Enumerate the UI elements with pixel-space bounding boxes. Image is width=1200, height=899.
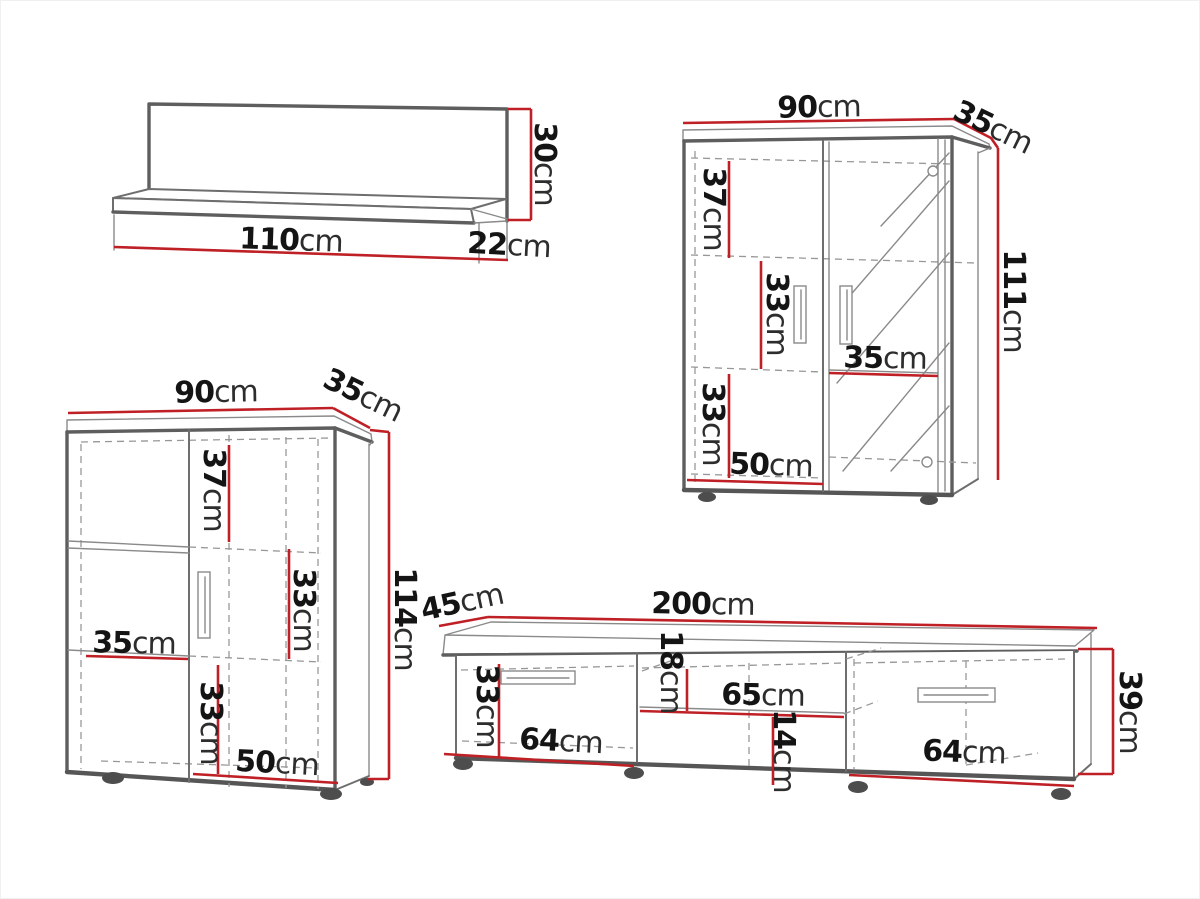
dim-display-cabinet-width: 90cm (777, 89, 861, 125)
dim-value: 50 (234, 743, 276, 780)
dim-unit: cm (470, 704, 505, 748)
dim-tvstand-left-drawer-width: 64cm (518, 721, 603, 760)
dim-unit: cm (274, 745, 319, 782)
dim-display-cabinet-shelf-width: 35cm (843, 340, 927, 376)
dim-tvstand-lower-niche-height: 14cm (767, 709, 802, 792)
dim-unit: cm (817, 89, 861, 125)
dim-tvstand-niche-width: 65cm (721, 677, 805, 713)
dim-unit: cm (456, 576, 506, 619)
dim-value: 33 (287, 568, 322, 608)
handle-outline (198, 572, 210, 638)
dim-highboard-middle-section: 33cm (287, 568, 322, 651)
dim-value: 14 (767, 709, 802, 749)
left-drawer-handle (501, 671, 575, 684)
dim-value: 33 (760, 272, 795, 312)
dim-unit: cm (768, 447, 813, 484)
height-dimension-line (1078, 649, 1113, 774)
dim-value: 64 (518, 721, 560, 758)
dim-tvstand-width: 200cm (651, 586, 755, 623)
diagram-canvas: 110cm 22cm 30cm (1, 1, 1199, 898)
cabinet-back-right-edge (978, 148, 990, 479)
dim-display-cabinet-bottom-section: 33cm (696, 382, 731, 465)
dim-value: 37 (197, 448, 232, 488)
glass-door-pin-top (928, 166, 938, 176)
dim-highboard-width: 90cm (174, 374, 258, 410)
dim-display-cabinet-top-section: 37cm (697, 167, 732, 250)
dim-highboard-bottom-section: 33cm (194, 681, 229, 764)
dim-value: 39 (1113, 670, 1148, 710)
dim-display-cabinet-door-width: 50cm (729, 446, 814, 484)
cabinet-bottom-right-slant (952, 479, 978, 495)
dim-value: 114 (388, 567, 423, 627)
dim-unit: cm (696, 422, 731, 466)
dim-display-cabinet-height: 111cm (997, 249, 1032, 352)
dim-unit: cm (654, 670, 689, 714)
dim-display-cabinet-middle-section: 33cm (760, 272, 795, 355)
dim-value: 65 (721, 677, 761, 713)
tvstand-foot (453, 758, 473, 770)
dim-unit: cm (711, 587, 755, 623)
handle-outline (840, 286, 852, 344)
tvstand-foot (1051, 788, 1071, 800)
dim-value: 33 (194, 681, 229, 721)
dim-wall-shelf-depth: 22cm (466, 225, 551, 264)
dim-unit: cm (506, 227, 551, 264)
tvstand-foot (848, 781, 868, 793)
dim-unit: cm (287, 608, 322, 652)
dim-unit: cm (883, 340, 927, 376)
door-handle (198, 572, 210, 638)
height-dimension-line (367, 432, 389, 779)
dim-value: 18 (654, 630, 689, 670)
dim-highboard-shelf-width: 35cm (92, 625, 176, 661)
highboard-foot (102, 772, 124, 784)
dim-highboard-door-width: 50cm (234, 743, 319, 782)
dim-value: 90 (174, 375, 214, 411)
dim-unit: cm (961, 734, 1006, 771)
dim-unit: cm (697, 207, 732, 251)
dim-highboard-height: 114cm (388, 567, 423, 670)
left-door-handle (794, 286, 806, 343)
highboard-foot (320, 788, 342, 800)
highboard-drawing: 90cm 35cm 114cm 37cm 33cm 35cm 33cm 50cm (67, 361, 423, 800)
dim-tvstand-niche-height: 18cm (654, 630, 689, 713)
dim-value: 110 (239, 221, 300, 258)
furniture-dimensions-diagram: 110cm 22cm 30cm (0, 0, 1200, 899)
dim-unit: cm (761, 677, 805, 713)
dim-tvstand-right-drawer-width: 64cm (922, 733, 1007, 771)
tvstand-foot (624, 767, 644, 779)
dim-display-cabinet-depth: 35cm (948, 93, 1038, 161)
dim-value: 33 (696, 382, 731, 422)
dim-value: 64 (922, 733, 963, 769)
dim-wall-shelf-width: 110cm (239, 221, 344, 260)
dim-unit: cm (132, 625, 176, 661)
dim-tvstand-depth: 45cm (418, 576, 507, 628)
dim-unit: cm (214, 374, 258, 410)
glass-door-pin-bottom (922, 457, 932, 467)
display-cabinet-drawing: 90cm 35cm 111cm 37cm 33cm 35cm 33cm 50cm (683, 89, 1038, 505)
dim-unit: cm (760, 312, 795, 356)
cabinet-foot (920, 495, 938, 505)
dim-tvstand-drawer-height: 33cm (470, 664, 505, 747)
wall-shelf-drawing: 110cm 22cm 30cm (113, 104, 563, 265)
dim-unit: cm (997, 309, 1032, 353)
highboard-back-right-edge (369, 442, 372, 776)
dim-value: 50 (729, 446, 770, 482)
dim-value: 90 (777, 90, 817, 126)
dim-value: 35 (92, 625, 132, 661)
dim-value: 200 (651, 586, 711, 622)
tv-stand-drawing: 200cm 45cm 39cm 33cm 64cm 18cm 65cm 14cm… (418, 576, 1148, 800)
dim-highboard-top-section: 37cm (197, 448, 232, 531)
dim-unit: cm (558, 723, 603, 760)
right-door-handle (840, 286, 852, 344)
tvstand-bottom-right-slant (1074, 764, 1091, 779)
dim-value: 37 (697, 167, 732, 207)
dim-tvstand-height: 39cm (1113, 670, 1148, 753)
dim-value: 35 (843, 340, 883, 376)
handle-outline (794, 286, 806, 343)
dim-unit: cm (1113, 710, 1148, 754)
dim-value: 22 (466, 225, 508, 262)
dim-unit: cm (388, 627, 423, 671)
right-drawer-handle (918, 688, 995, 702)
cabinet-foot (698, 492, 716, 502)
dim-value: 111 (997, 249, 1032, 309)
dim-unit: cm (528, 162, 563, 206)
dim-wall-shelf-height: 30cm (528, 122, 563, 205)
dim-unit: cm (298, 223, 343, 260)
dim-unit: cm (197, 488, 232, 532)
dim-value: 30 (528, 122, 563, 162)
dim-value: 33 (470, 664, 505, 704)
dim-unit: cm (767, 749, 802, 793)
dim-unit: cm (194, 721, 229, 765)
